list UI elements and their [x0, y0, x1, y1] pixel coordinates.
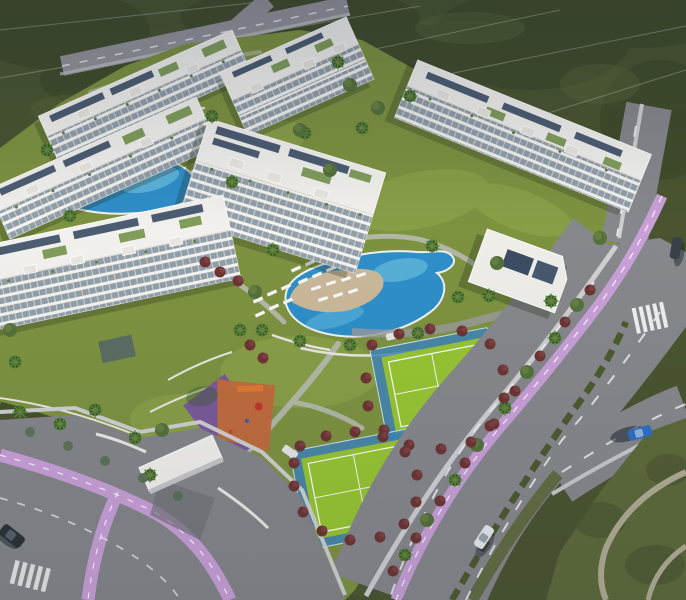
- aerial-render: [0, 0, 686, 600]
- aerial-render-stage: Dusk aerial CGI view of a white low-rise…: [0, 0, 686, 600]
- dusk-vignette: [0, 0, 686, 600]
